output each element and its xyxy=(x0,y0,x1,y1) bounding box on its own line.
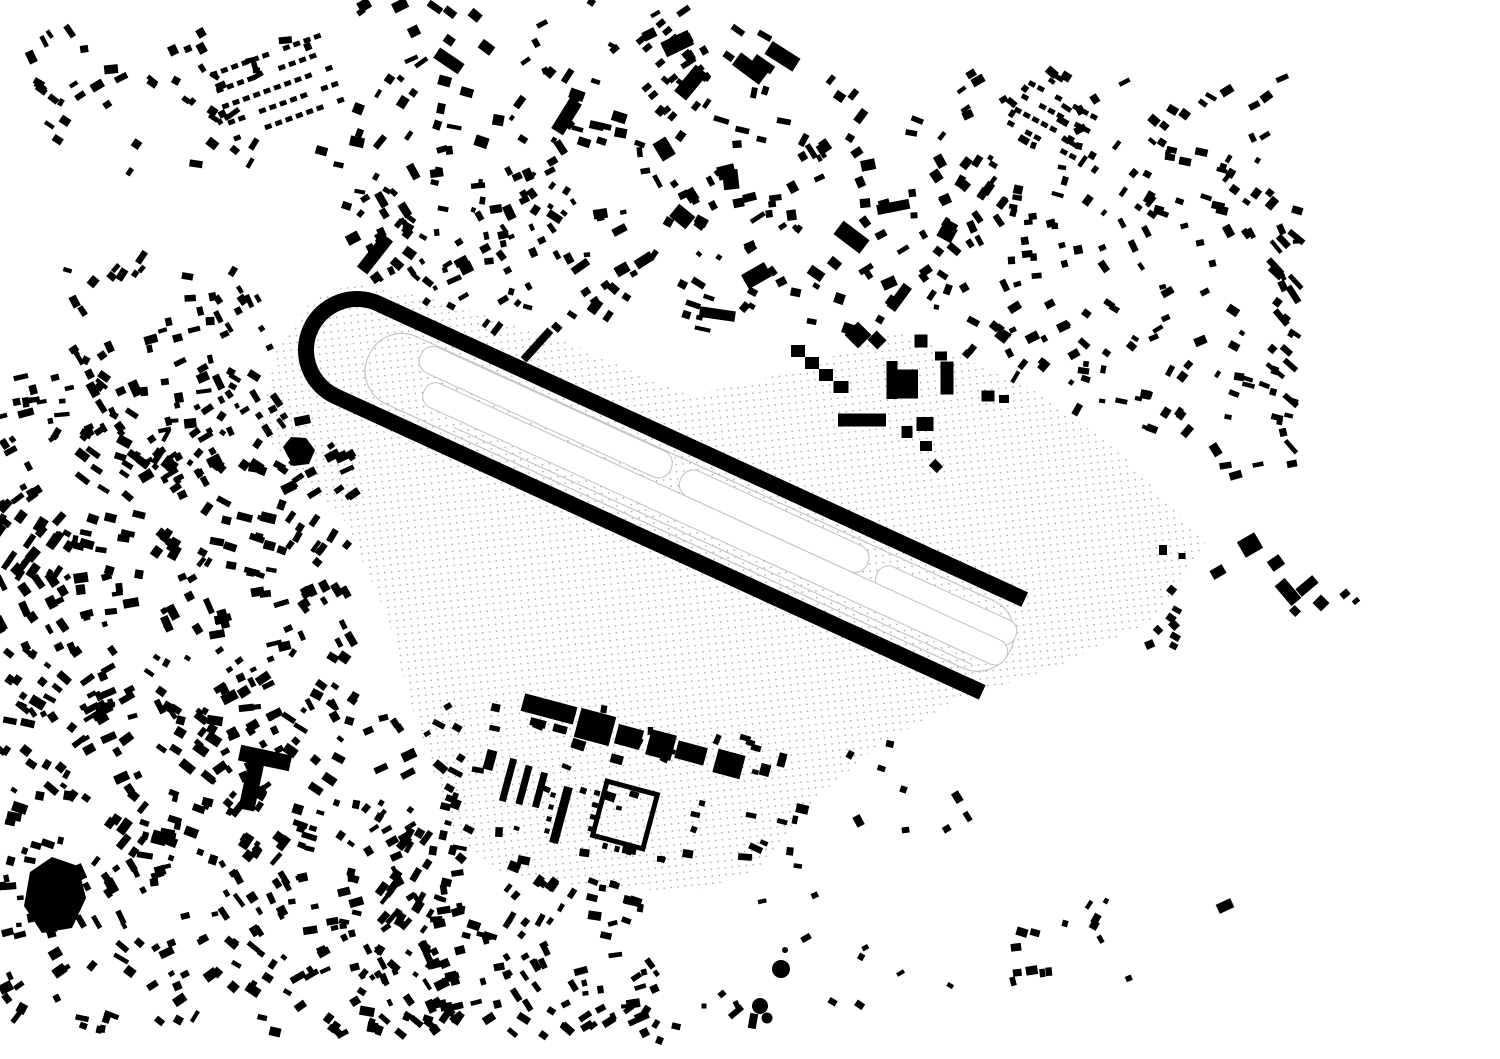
building xyxy=(640,968,647,975)
building xyxy=(238,704,254,713)
building xyxy=(512,172,523,182)
building xyxy=(1077,367,1089,375)
building xyxy=(1078,337,1091,349)
building xyxy=(588,910,602,921)
building xyxy=(127,713,138,720)
building xyxy=(211,911,218,917)
building xyxy=(436,906,451,915)
block xyxy=(1352,597,1361,605)
building xyxy=(216,411,227,422)
building xyxy=(1219,461,1232,469)
building xyxy=(677,279,688,290)
building xyxy=(459,86,474,98)
building xyxy=(1005,348,1015,359)
building xyxy=(1225,154,1233,163)
building xyxy=(547,203,554,210)
building xyxy=(1284,412,1293,418)
building xyxy=(1010,943,1021,952)
building xyxy=(319,966,331,974)
building xyxy=(54,412,70,418)
building xyxy=(586,893,598,902)
building xyxy=(1098,260,1111,274)
building xyxy=(270,852,283,866)
building xyxy=(504,166,513,176)
building xyxy=(1083,361,1089,367)
building xyxy=(422,978,432,990)
building xyxy=(326,528,339,543)
building xyxy=(71,735,87,749)
building xyxy=(451,869,464,877)
building xyxy=(553,250,562,260)
building xyxy=(551,321,563,333)
building xyxy=(418,233,427,241)
building xyxy=(291,803,304,815)
block xyxy=(800,933,812,943)
building xyxy=(1,927,14,937)
building xyxy=(987,154,994,161)
building xyxy=(134,937,145,948)
building xyxy=(143,334,158,346)
building xyxy=(16,922,22,927)
building xyxy=(63,267,73,274)
building xyxy=(369,824,380,833)
building xyxy=(524,282,532,291)
building xyxy=(1183,360,1193,370)
building xyxy=(581,979,588,986)
building xyxy=(1228,389,1240,398)
building xyxy=(312,557,323,568)
building xyxy=(97,350,108,361)
building xyxy=(1067,348,1080,360)
building xyxy=(671,1022,681,1030)
building xyxy=(493,999,502,1009)
building xyxy=(391,0,409,13)
building xyxy=(758,898,767,904)
building xyxy=(458,292,469,301)
building xyxy=(17,582,31,597)
building xyxy=(776,117,791,125)
building xyxy=(1142,170,1152,179)
building xyxy=(640,167,650,174)
building xyxy=(276,905,289,918)
building xyxy=(133,771,142,780)
building xyxy=(806,318,816,325)
building xyxy=(279,36,293,44)
block xyxy=(1153,625,1164,636)
building xyxy=(479,977,486,985)
building xyxy=(639,1027,650,1038)
building xyxy=(19,744,32,757)
building xyxy=(219,330,229,339)
block xyxy=(920,441,932,451)
building xyxy=(655,58,666,68)
building xyxy=(33,516,49,534)
building xyxy=(1017,358,1028,370)
building xyxy=(25,50,38,65)
building xyxy=(265,707,283,721)
building xyxy=(471,182,486,189)
building xyxy=(1017,134,1030,146)
building xyxy=(547,222,557,234)
building xyxy=(73,572,89,584)
building xyxy=(233,893,246,908)
building xyxy=(11,492,25,504)
building xyxy=(443,5,458,19)
building xyxy=(434,229,440,236)
building xyxy=(329,710,341,723)
building xyxy=(582,991,589,996)
building xyxy=(1025,330,1041,344)
building xyxy=(227,980,240,993)
building xyxy=(276,499,286,511)
building xyxy=(988,160,998,169)
building xyxy=(3,882,16,890)
building xyxy=(261,972,274,984)
building xyxy=(336,735,344,743)
building xyxy=(1039,969,1046,978)
building xyxy=(854,999,865,1010)
building xyxy=(249,666,257,673)
building xyxy=(933,304,939,310)
building xyxy=(187,573,198,583)
map-canvas xyxy=(0,0,1500,1059)
building xyxy=(652,137,675,162)
building xyxy=(573,966,588,976)
building xyxy=(158,327,168,333)
building xyxy=(226,83,234,90)
building xyxy=(234,306,243,315)
building xyxy=(13,930,26,939)
building xyxy=(247,941,261,953)
block xyxy=(819,369,833,381)
building xyxy=(675,130,687,142)
building xyxy=(309,754,321,766)
building xyxy=(1119,186,1128,197)
building xyxy=(557,903,565,913)
building xyxy=(732,197,744,208)
building xyxy=(1081,375,1091,384)
building xyxy=(131,138,143,150)
block xyxy=(1179,553,1186,559)
building xyxy=(1209,442,1223,457)
building xyxy=(294,76,302,83)
building xyxy=(1252,461,1264,468)
building xyxy=(589,120,605,131)
building xyxy=(309,53,317,60)
building xyxy=(183,825,199,838)
building xyxy=(340,933,348,942)
building xyxy=(203,598,215,615)
building xyxy=(1254,157,1261,164)
building xyxy=(962,811,972,823)
building xyxy=(405,949,413,956)
building xyxy=(403,993,415,1006)
building xyxy=(437,75,452,88)
building xyxy=(269,1026,282,1037)
building xyxy=(262,52,270,59)
building xyxy=(504,883,513,893)
block xyxy=(915,335,928,348)
building xyxy=(1013,281,1022,288)
building xyxy=(43,781,59,796)
building xyxy=(187,326,200,334)
building xyxy=(951,790,964,804)
building xyxy=(466,919,481,931)
building xyxy=(288,648,297,658)
building xyxy=(1283,358,1299,373)
building xyxy=(269,103,277,110)
building xyxy=(137,265,145,274)
building xyxy=(669,204,695,230)
building xyxy=(192,741,210,757)
building xyxy=(642,43,653,53)
block xyxy=(717,989,726,998)
building xyxy=(349,995,361,1007)
building xyxy=(538,1030,549,1040)
building xyxy=(537,236,547,245)
building xyxy=(608,920,618,927)
building xyxy=(236,79,244,86)
building xyxy=(121,490,134,502)
building xyxy=(150,878,159,887)
building xyxy=(1100,209,1107,216)
building xyxy=(80,673,95,687)
building xyxy=(1081,308,1092,319)
building xyxy=(1159,120,1170,131)
building xyxy=(470,999,482,1006)
building xyxy=(268,959,278,970)
building xyxy=(1126,341,1137,352)
building xyxy=(303,925,318,935)
building xyxy=(933,153,947,169)
building xyxy=(254,294,262,303)
block xyxy=(1209,564,1226,580)
block xyxy=(1289,605,1301,617)
building xyxy=(959,156,973,170)
building xyxy=(708,200,718,211)
building xyxy=(1242,381,1255,388)
building xyxy=(661,75,671,85)
building xyxy=(897,244,910,255)
building xyxy=(1178,108,1191,121)
building xyxy=(769,194,782,202)
building xyxy=(273,84,281,91)
building xyxy=(3,648,15,659)
block xyxy=(1295,575,1318,597)
building xyxy=(219,429,226,436)
building xyxy=(1061,103,1073,113)
tank xyxy=(752,998,768,1014)
building xyxy=(738,853,752,861)
building xyxy=(301,831,318,841)
building xyxy=(429,846,438,856)
building xyxy=(621,916,632,925)
building xyxy=(1228,184,1240,196)
building xyxy=(226,666,234,673)
building xyxy=(957,86,967,95)
building xyxy=(1044,299,1056,310)
building xyxy=(270,725,279,735)
block xyxy=(1237,532,1263,558)
building xyxy=(17,407,34,418)
building xyxy=(374,191,389,209)
building xyxy=(164,416,172,426)
building xyxy=(113,953,129,965)
building xyxy=(384,73,396,85)
building xyxy=(571,125,583,133)
building xyxy=(833,90,847,103)
building xyxy=(396,74,404,82)
block xyxy=(917,417,934,431)
building xyxy=(1171,605,1182,614)
building xyxy=(360,194,371,204)
building xyxy=(510,890,520,901)
building xyxy=(146,344,153,353)
building xyxy=(289,96,297,103)
building xyxy=(231,960,242,969)
building xyxy=(1096,935,1104,944)
building xyxy=(206,317,215,326)
building xyxy=(119,469,130,478)
building xyxy=(293,722,308,734)
building xyxy=(1025,965,1038,976)
building xyxy=(28,707,38,718)
building xyxy=(478,39,496,56)
building xyxy=(406,806,414,814)
building xyxy=(205,137,219,151)
building xyxy=(113,771,130,785)
building xyxy=(10,787,18,794)
building xyxy=(172,333,183,343)
building xyxy=(1265,362,1285,379)
building xyxy=(68,295,80,309)
building xyxy=(503,266,512,275)
building xyxy=(325,65,333,72)
building xyxy=(620,209,627,215)
building xyxy=(390,851,403,862)
building xyxy=(272,877,283,889)
building xyxy=(174,392,184,403)
building xyxy=(400,748,417,763)
building xyxy=(1208,259,1216,267)
building xyxy=(938,193,952,206)
building xyxy=(520,917,530,927)
building xyxy=(249,389,261,403)
building xyxy=(69,80,79,88)
cluster-right-edge-strokes xyxy=(1265,229,1305,455)
building xyxy=(171,76,181,86)
building xyxy=(181,272,193,281)
building xyxy=(229,145,240,156)
building xyxy=(323,1012,335,1024)
building xyxy=(1030,141,1037,149)
building xyxy=(1250,187,1262,200)
building xyxy=(386,999,393,1007)
building xyxy=(184,655,191,662)
building xyxy=(613,261,630,277)
building xyxy=(174,402,181,409)
building xyxy=(285,510,297,523)
building xyxy=(810,891,819,899)
building xyxy=(377,799,384,807)
building xyxy=(546,156,558,167)
building xyxy=(1180,424,1194,438)
building xyxy=(168,855,175,862)
building xyxy=(86,960,97,972)
building xyxy=(1134,203,1143,212)
building xyxy=(768,201,776,208)
building xyxy=(1008,256,1016,264)
building xyxy=(521,952,530,961)
building xyxy=(132,510,146,520)
building xyxy=(1165,153,1176,161)
building xyxy=(41,759,52,771)
building xyxy=(235,672,246,682)
building xyxy=(112,746,122,757)
building xyxy=(273,599,289,609)
building xyxy=(621,292,631,302)
building xyxy=(125,407,139,419)
building xyxy=(290,970,307,984)
building xyxy=(198,63,207,73)
building xyxy=(154,1016,165,1027)
building xyxy=(189,159,203,168)
building xyxy=(621,1004,633,1009)
building xyxy=(778,222,787,231)
building xyxy=(1275,73,1289,83)
building xyxy=(1024,129,1033,137)
building xyxy=(814,173,826,182)
tank xyxy=(782,947,788,953)
block xyxy=(999,395,1009,403)
building xyxy=(161,378,170,385)
building xyxy=(348,896,364,908)
block xyxy=(935,352,947,361)
building xyxy=(64,573,72,581)
building xyxy=(1013,969,1023,977)
building xyxy=(1205,92,1217,102)
building xyxy=(344,716,354,726)
building xyxy=(1028,213,1037,221)
building xyxy=(1013,184,1024,195)
building xyxy=(342,540,352,551)
building xyxy=(284,80,292,87)
building xyxy=(74,90,86,101)
building xyxy=(1007,301,1022,315)
building xyxy=(330,925,338,931)
building xyxy=(1157,137,1167,147)
building xyxy=(670,179,679,188)
building xyxy=(300,92,308,99)
cluster-left-dense-fabric xyxy=(0,368,361,728)
building xyxy=(1265,196,1280,211)
building xyxy=(474,210,484,221)
building xyxy=(266,567,277,573)
building xyxy=(577,136,592,148)
building xyxy=(264,123,272,130)
building xyxy=(1009,326,1017,333)
building xyxy=(125,167,134,176)
building xyxy=(1091,165,1100,174)
building xyxy=(200,475,210,487)
building xyxy=(653,969,660,977)
building xyxy=(1159,284,1167,290)
tank xyxy=(762,1013,773,1024)
building xyxy=(1115,398,1128,405)
building xyxy=(77,305,88,317)
building xyxy=(226,561,237,570)
building xyxy=(850,146,863,159)
